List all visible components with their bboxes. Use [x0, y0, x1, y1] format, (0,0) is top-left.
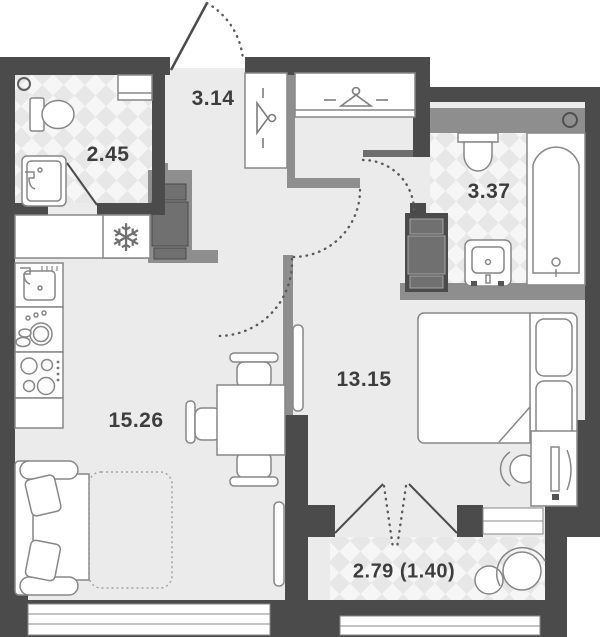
stove [15, 352, 63, 398]
outside-bottom-right [567, 527, 600, 637]
balcony-pier-right [457, 505, 483, 537]
bed [418, 313, 577, 443]
chair-back [230, 477, 278, 486]
sofa [15, 461, 89, 595]
tv-bedroom [293, 325, 303, 411]
monitor [551, 447, 559, 491]
wall-balcony-ne [545, 505, 600, 537]
balcony-stool [475, 566, 503, 594]
room-label-living: 15.26 [108, 409, 163, 433]
bathtub [527, 133, 585, 285]
room-label-bathroom: 3.37 [468, 180, 511, 204]
entry-door-arc [207, 3, 243, 60]
wc-right-wall [152, 57, 165, 205]
living-room-window [28, 604, 270, 635]
sofa-pillow [25, 539, 62, 581]
partition-thick [285, 415, 308, 610]
wc-sink [22, 156, 66, 206]
outside-top-right [408, 53, 600, 87]
chair-back [230, 353, 278, 362]
hall-living-wall [287, 178, 360, 188]
room-label-bedroom: 13.15 [336, 368, 391, 392]
drop-icon [34, 313, 38, 317]
wall-top-right [425, 87, 600, 102]
wardrobe-divider-wall [287, 73, 295, 188]
balcony-table [503, 552, 541, 590]
kitchen-counter-bottom [15, 398, 63, 428]
bedroom-balcony-window [483, 508, 543, 534]
balcony-window [340, 616, 540, 635]
burner [24, 381, 35, 392]
burner [38, 378, 55, 395]
balcony-pier-left [308, 505, 335, 537]
chair-seat [237, 362, 271, 388]
room-label-wc: 2.45 [87, 143, 130, 167]
dish-rack [15, 307, 63, 352]
burner [42, 360, 53, 371]
entry-door-leaf [171, 3, 207, 70]
toilet [30, 98, 74, 131]
room-label-hallway: 3.14 [192, 87, 235, 111]
bathroom-sink [465, 240, 511, 286]
drop-icon [42, 311, 46, 315]
wc-bottom-wall-b [97, 203, 165, 215]
chair-back [186, 401, 195, 443]
wall-top-left [0, 57, 170, 75]
room-label-balcony: 2.79 (1.40) [353, 561, 455, 584]
wc-shelf [118, 75, 152, 100]
bathroom-top-wall [425, 108, 585, 133]
floor-plan-drawing: ❄ [0, 0, 600, 637]
burner [21, 358, 37, 374]
pillow [536, 319, 572, 376]
utility-shaft-right [405, 203, 448, 292]
tv-living-room [274, 502, 284, 586]
snowflake-icon: ❄ [110, 218, 142, 260]
drop-icon [26, 316, 30, 320]
chair-seat [237, 452, 271, 478]
pillow [536, 381, 572, 438]
floor-plan: ❄ [0, 0, 600, 637]
dining-table [217, 385, 285, 455]
